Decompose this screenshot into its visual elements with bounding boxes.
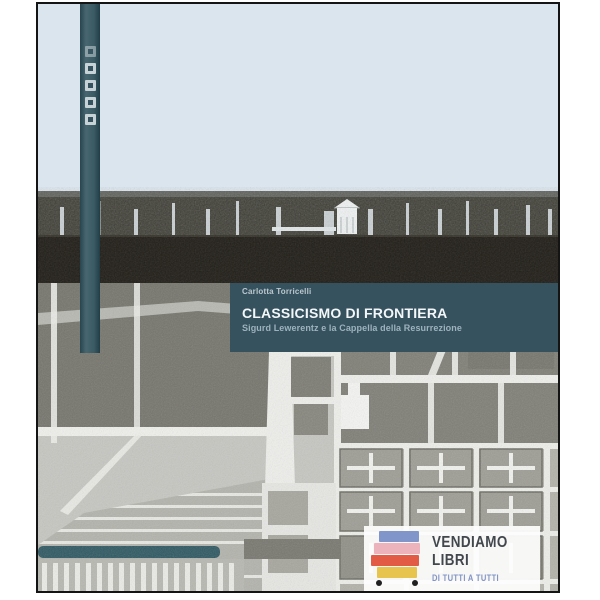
cart-wheels-icon xyxy=(376,580,418,586)
book-title: CLASSICISMO DI FRONTIERA xyxy=(242,305,550,321)
series-mark-block xyxy=(85,80,96,91)
author-name: Carlotta Torricelli xyxy=(242,287,550,296)
book-subtitle: Sigurd Lewerentz e la Cappella della Res… xyxy=(242,323,550,333)
watermark-tagline: DI TUTTI A TUTTI xyxy=(432,573,508,583)
series-mark xyxy=(85,46,96,125)
bookstore-watermark: VENDIAMO LIBRI DI TUTTI A TUTTI xyxy=(364,526,540,591)
series-mark-block xyxy=(85,46,96,57)
book-cover: Carlotta Torricelli CLASSICISMO DI FRONT… xyxy=(36,2,560,593)
series-mark-block xyxy=(85,114,96,125)
spine-strip xyxy=(80,4,100,353)
book-stripe-yellow xyxy=(377,567,417,578)
book-stripe-pink xyxy=(374,543,420,554)
tree-elevation-drawing xyxy=(38,183,558,283)
book-stack-icon xyxy=(371,531,423,586)
series-mark-block xyxy=(85,97,96,108)
watermark-title-line2: LIBRI xyxy=(432,552,508,569)
book-stripe-blue xyxy=(379,531,419,542)
book-stripe-red xyxy=(371,555,419,566)
watermark-title-line1: VENDIAMO xyxy=(432,534,508,551)
series-mark-block xyxy=(85,63,96,74)
title-band: Carlotta Torricelli CLASSICISMO DI FRONT… xyxy=(230,283,558,352)
